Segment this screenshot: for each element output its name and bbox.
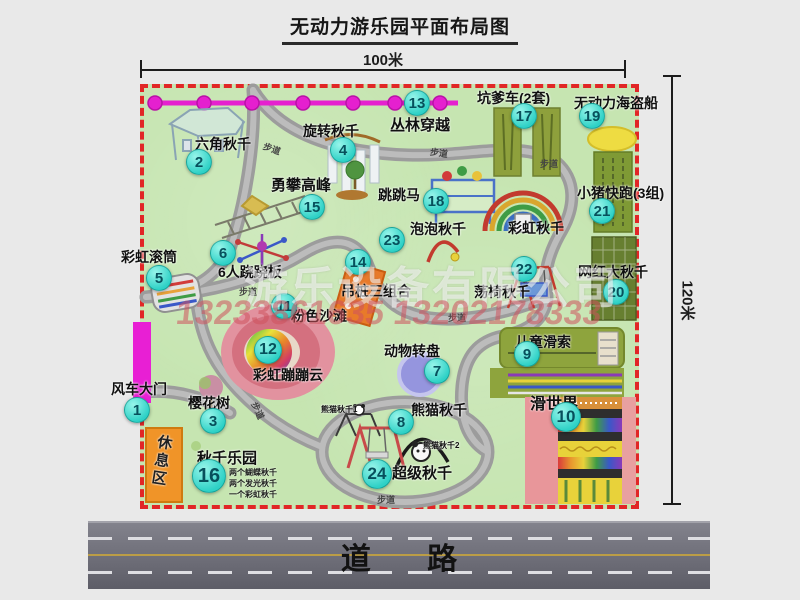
item-label-23: 泡泡秋千 — [410, 222, 466, 237]
item-label-22: 荡椅秋千 — [474, 285, 530, 300]
item-marker-5: 5 — [146, 265, 172, 291]
item-label-13: 丛林穿越 — [390, 118, 450, 135]
item-marker-11: 11 — [271, 293, 297, 319]
page-title: 无动力游乐园平面布局图 — [0, 12, 800, 45]
sublabel-line: 两个发光秋千 — [229, 479, 277, 490]
item-marker-21: 21 — [589, 198, 615, 224]
item-marker-3: 3 — [200, 408, 226, 434]
item-marker-1: 1 — [124, 397, 150, 423]
item-marker-7: 7 — [424, 358, 450, 384]
trail-label-6: 步道 — [377, 493, 395, 506]
item-label-8: 熊猫秋千 — [411, 403, 467, 418]
item-marker-6: 6 — [210, 240, 236, 266]
item-marker-14: 14 — [345, 249, 371, 275]
item-label-12: 彩虹蹦蹦云 — [253, 368, 323, 383]
item-label-1: 风车大门 — [111, 382, 167, 397]
item-marker-12: 12 — [254, 336, 282, 364]
trail-label-4: 步道 — [448, 311, 466, 324]
page-title-text: 无动力游乐园平面布局图 — [282, 12, 518, 45]
trail-label-0: 步道 — [261, 139, 282, 157]
item-marker-19: 19 — [579, 103, 605, 129]
item-label-11: 粉色沙滩 — [291, 309, 347, 324]
item-marker-2: 2 — [186, 149, 212, 175]
item-label-14: 吊桩三组合 — [341, 284, 411, 299]
trail-label-5: 步道 — [248, 400, 267, 422]
playground-layout-map: 无动力游乐园平面布局图 100米 120米 — [0, 0, 800, 600]
item-marker-22: 22 — [511, 256, 537, 282]
dimension-line-right — [671, 76, 673, 504]
item-marker-4: 4 — [330, 137, 356, 163]
item-marker-8: 8 — [388, 409, 414, 435]
item-label-6: 6人跷跷板 — [218, 265, 282, 280]
rest-area-label: 休息区 — [148, 433, 173, 489]
item-marker-23: 23 — [379, 227, 405, 253]
item-label-4: 旋转秋千 — [303, 124, 359, 139]
item-label-7: 动物转盘 — [384, 344, 440, 359]
dimension-tick-right-bottom — [663, 503, 681, 505]
sublabel-line: 一个彩虹秋千 — [229, 490, 277, 501]
trail-label-2: 步道 — [540, 157, 558, 170]
item-label-15: 勇攀高峰 — [271, 178, 331, 195]
panda-swing-1-label: 熊猫秋千1 — [321, 406, 357, 415]
rainbow-swing-label: 彩虹秋千 — [508, 221, 564, 236]
dimension-label-width: 100米 — [141, 49, 625, 70]
item-marker-10: 10 — [551, 402, 581, 432]
road: 道 路 — [88, 521, 710, 589]
item-marker-24: 24 — [362, 459, 392, 489]
item-marker-9: 9 — [514, 341, 540, 367]
item-marker-20: 20 — [603, 279, 629, 305]
item-label-17: 坑爹车(2套) — [477, 91, 550, 106]
panda-swing-2-label: 熊猫秋千2 — [423, 442, 459, 451]
item-marker-13: 13 — [404, 90, 430, 116]
trail-label-3: 步道 — [239, 285, 257, 298]
item-marker-15: 15 — [299, 194, 325, 220]
trail-label-1: 步道 — [429, 145, 449, 160]
item-sublabels-16: 两个蝴蝶秋千两个发光秋千一个彩虹秋千 — [229, 468, 277, 500]
item-label-21: 小猪快跑(3组) — [577, 186, 664, 201]
item-marker-18: 18 — [423, 188, 449, 214]
item-marker-17: 17 — [511, 103, 537, 129]
item-marker-16: 16 — [192, 459, 226, 493]
item-label-5: 彩虹滚筒 — [121, 250, 177, 265]
road-label: 道 路 — [88, 523, 710, 589]
dimension-label-height: 120米 — [678, 280, 699, 320]
item-label-18: 跳跳马 — [378, 188, 420, 203]
sublabel-line: 两个蝴蝶秋千 — [229, 468, 277, 479]
item-label-20: 网红大秋千 — [578, 265, 648, 280]
dimension-tick-right-top — [663, 75, 681, 77]
item-label-24: 超级秋千 — [392, 466, 452, 483]
